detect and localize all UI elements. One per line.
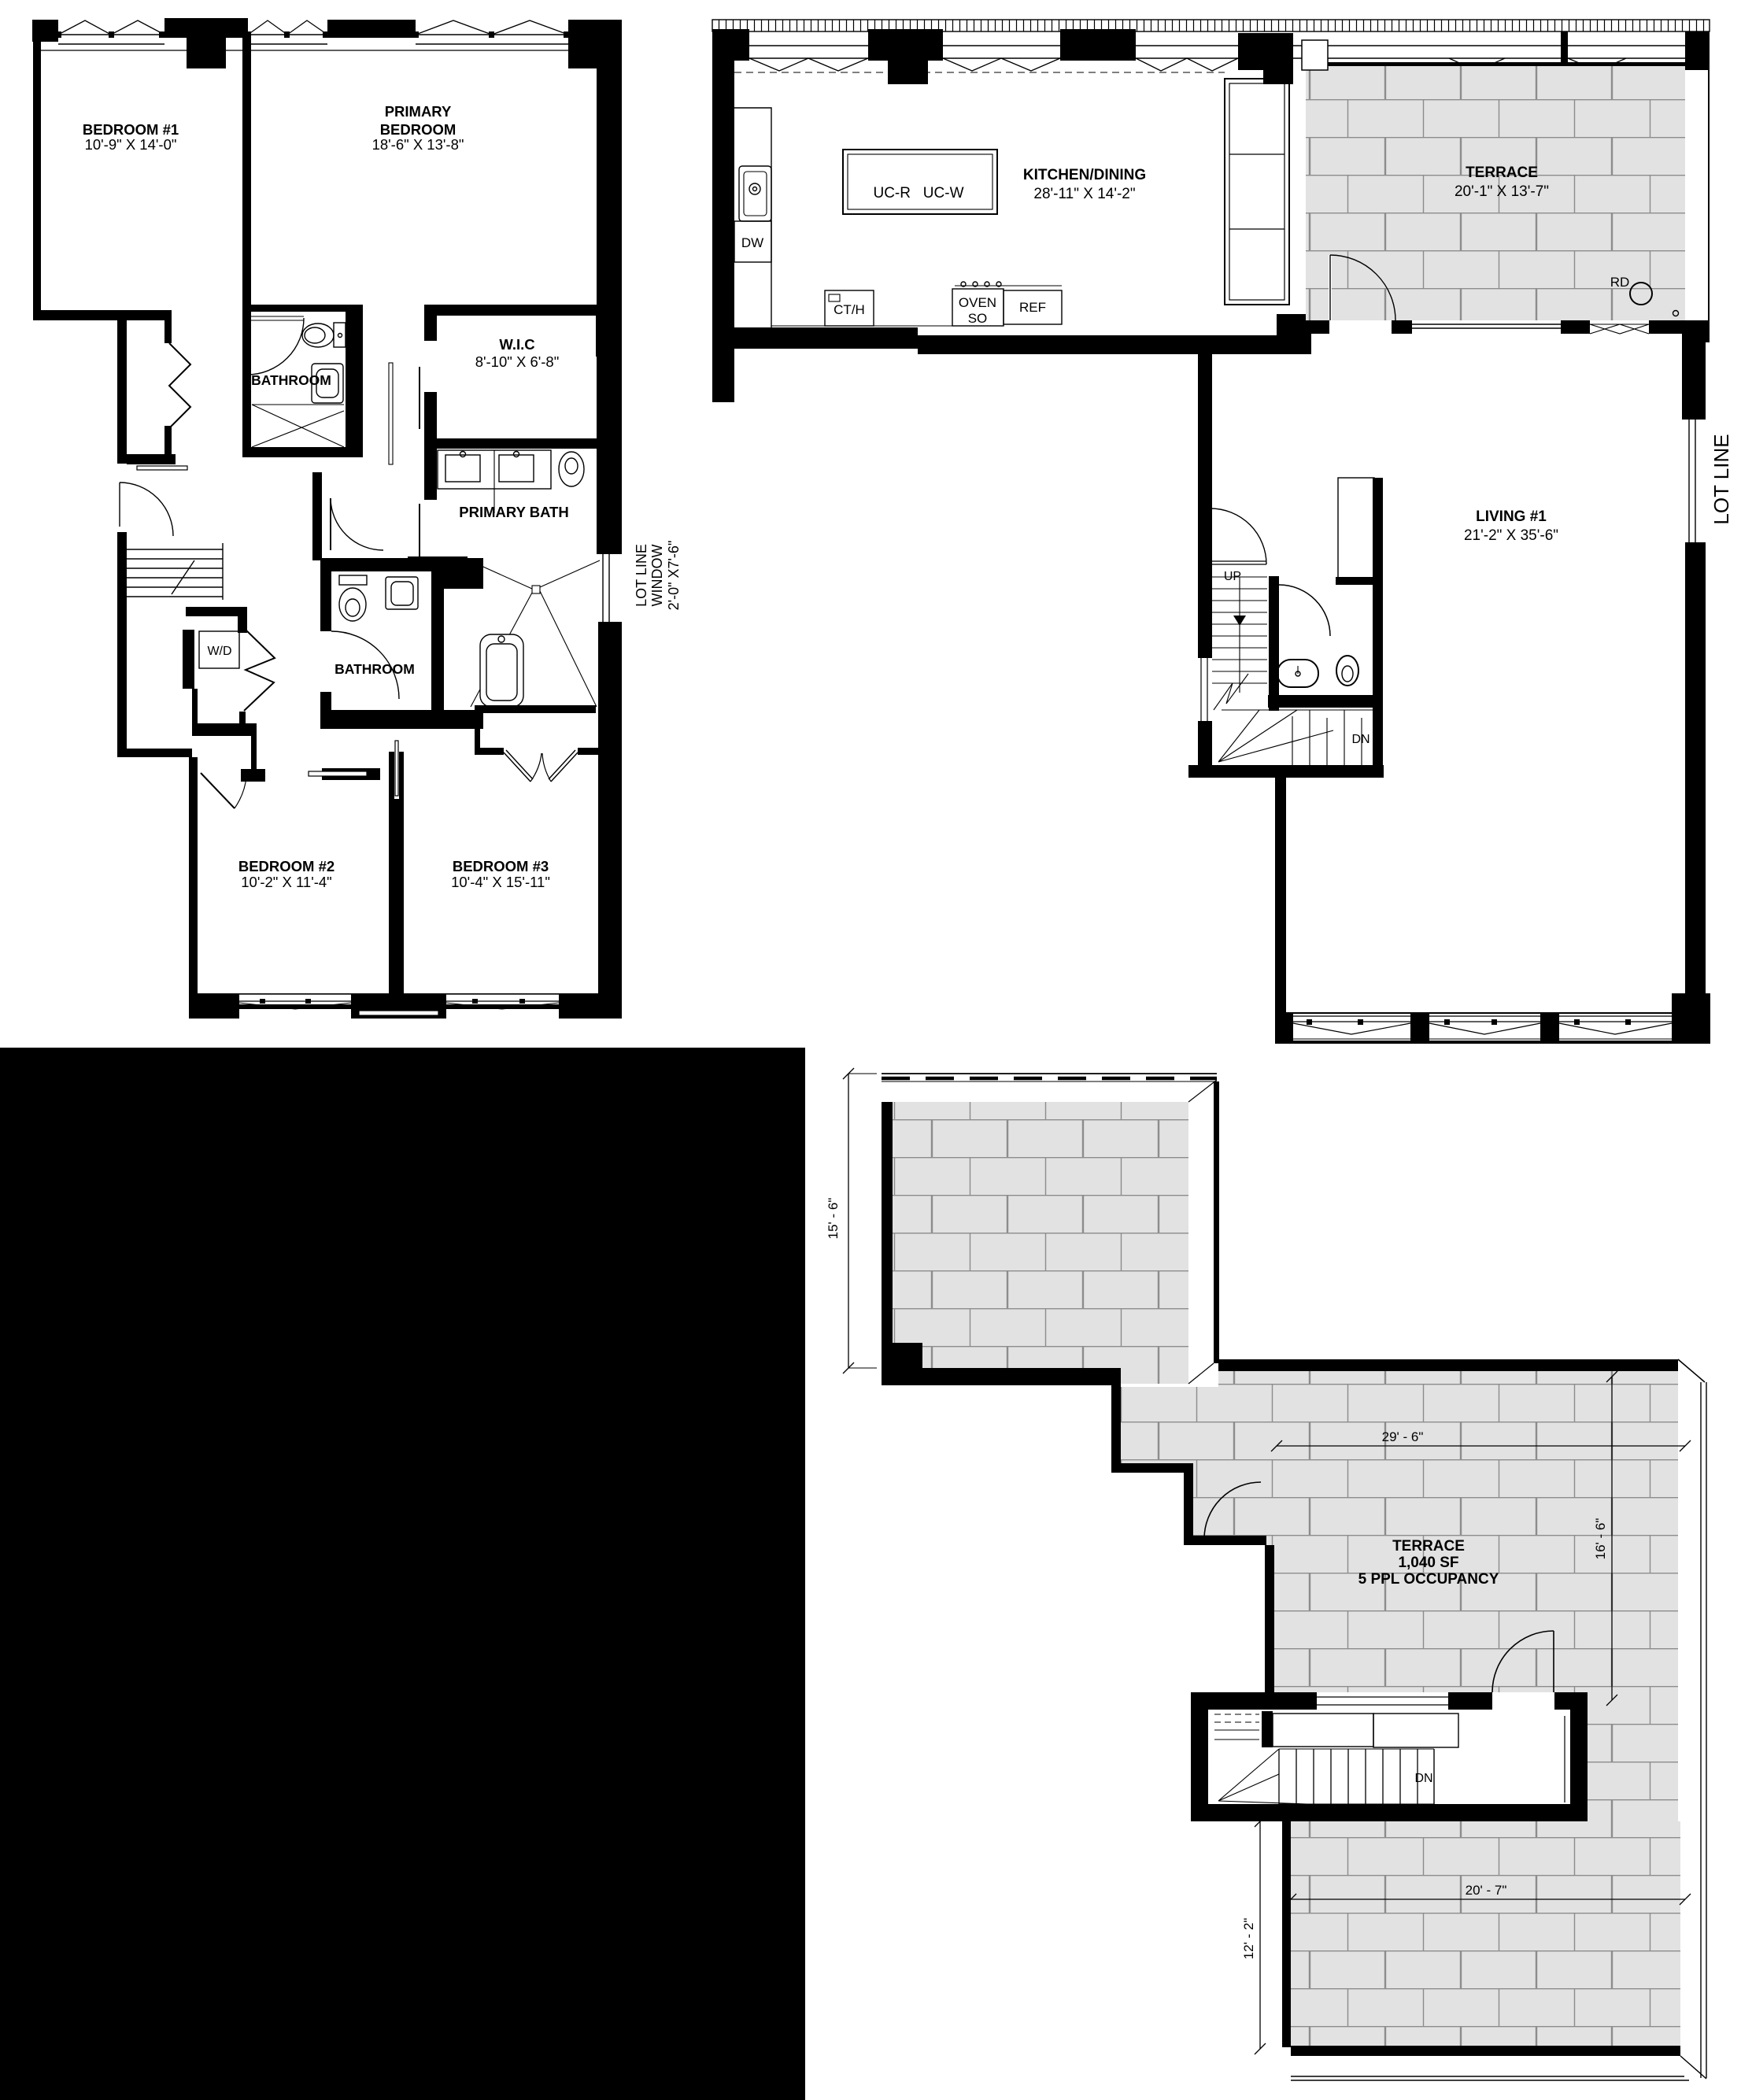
svg-text:BATHROOM: BATHROOM [251, 372, 331, 388]
svg-text:12' - 2": 12' - 2" [1241, 1918, 1256, 1960]
svg-text:LIVING #1: LIVING #1 [1476, 508, 1547, 525]
svg-text:PRIMARY: PRIMARY [385, 103, 452, 120]
svg-text:2'-0" X7'-6": 2'-0" X7'-6" [666, 541, 682, 611]
svg-text:KITCHEN/DINING: KITCHEN/DINING [1023, 167, 1146, 183]
svg-text:10'-9" X 14'-0": 10'-9" X 14'-0" [85, 136, 177, 153]
svg-text:RD: RD [1610, 275, 1630, 290]
svg-text:BATHROOM: BATHROOM [335, 661, 415, 677]
svg-text:5 PPL OCCUPANCY: 5 PPL OCCUPANCY [1358, 1571, 1499, 1588]
svg-text:29' - 6": 29' - 6" [1382, 1429, 1424, 1444]
svg-text:28'-11" X 14'-2": 28'-11" X 14'-2" [1033, 186, 1135, 202]
svg-text:21'-2" X 35'-6": 21'-2" X 35'-6" [1464, 527, 1558, 544]
svg-text:20'-1" X 13'-7": 20'-1" X 13'-7" [1455, 183, 1549, 200]
svg-text:UP: UP [1224, 570, 1241, 583]
svg-text:BEDROOM #2: BEDROOM #2 [238, 858, 335, 874]
svg-text:8'-10" X 6'-8": 8'-10" X 6'-8" [475, 353, 560, 370]
svg-text:PRIMARY BATH: PRIMARY BATH [459, 504, 568, 520]
svg-text:LOT LINE: LOT LINE [634, 544, 649, 607]
svg-text:20' - 7": 20' - 7" [1466, 1883, 1507, 1898]
svg-text:BEDROOM #3: BEDROOM #3 [453, 858, 549, 874]
svg-text:REF: REF [1019, 300, 1046, 315]
svg-text:LOT LINE: LOT LINE [1710, 434, 1733, 524]
svg-text:WINDOW: WINDOW [649, 545, 665, 607]
svg-text:18'-6" X 13'-8": 18'-6" X 13'-8" [372, 136, 464, 153]
svg-text:TERRACE: TERRACE [1392, 1538, 1465, 1555]
svg-text:10'-4" X 15'-11": 10'-4" X 15'-11" [451, 874, 550, 890]
svg-text:W/D: W/D [207, 645, 231, 658]
svg-text:DN: DN [1351, 733, 1370, 746]
svg-text:BEDROOM #1: BEDROOM #1 [83, 121, 179, 138]
svg-text:16' - 6": 16' - 6" [1593, 1518, 1608, 1560]
svg-text:CT/H: CT/H [834, 302, 865, 317]
svg-text:DN: DN [1414, 1772, 1432, 1785]
svg-text:TERRACE: TERRACE [1466, 165, 1538, 181]
svg-text:BEDROOM: BEDROOM [380, 121, 457, 138]
svg-text:UC-R UC-W: UC-R UC-W [873, 185, 963, 201]
svg-text:1,040 SF: 1,040 SF [1398, 1555, 1458, 1571]
svg-text:10'-2" X 11'-4": 10'-2" X 11'-4" [241, 874, 332, 890]
svg-text:SO: SO [968, 311, 988, 326]
svg-text:OVEN: OVEN [959, 295, 996, 310]
svg-text:W.I.C: W.I.C [499, 336, 534, 353]
svg-text:15' - 6": 15' - 6" [826, 1198, 841, 1240]
svg-text:DW: DW [741, 235, 763, 250]
